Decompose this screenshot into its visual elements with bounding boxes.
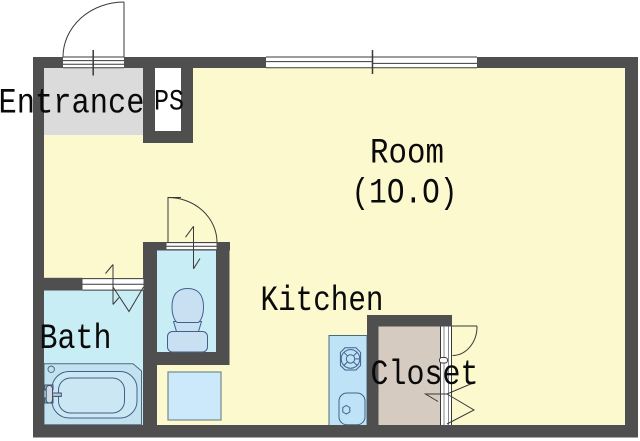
- svg-text:Bath: Bath: [40, 319, 112, 359]
- svg-text:Entrance: Entrance: [0, 84, 145, 124]
- svg-text:(1O.O): (1O.O): [352, 173, 458, 213]
- svg-text:Kitchen: Kitchen: [261, 281, 384, 321]
- svg-text:Room: Room: [370, 134, 444, 174]
- svg-text:PS: PS: [154, 85, 184, 119]
- svg-text:Closet: Closet: [371, 355, 479, 395]
